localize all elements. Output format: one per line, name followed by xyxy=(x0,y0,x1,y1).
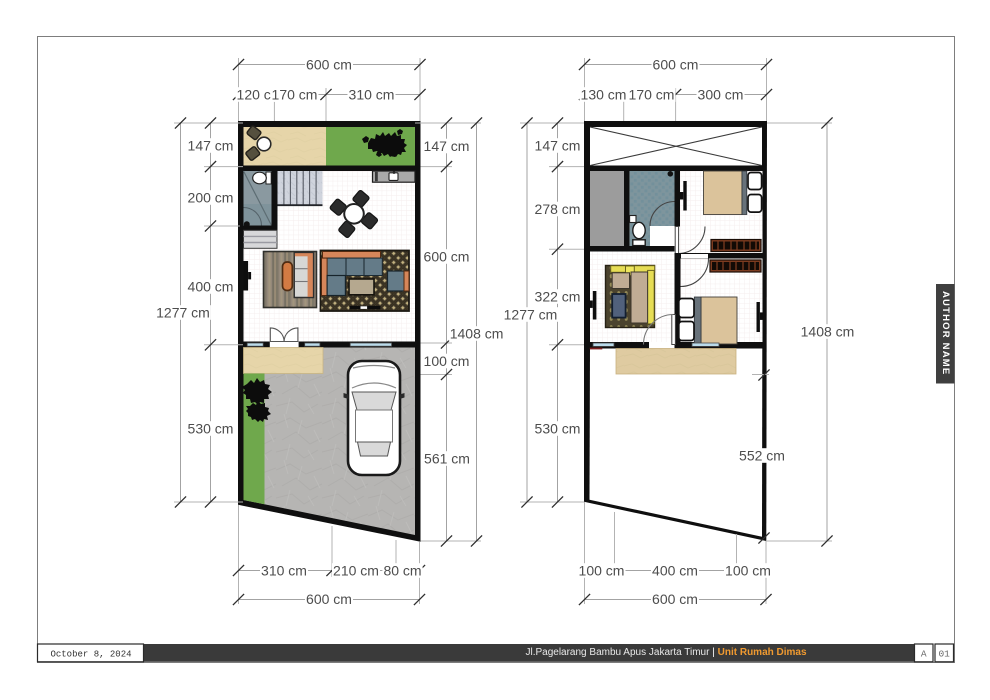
svg-text:147 cm: 147 cm xyxy=(424,138,470,154)
svg-text:1408 cm: 1408 cm xyxy=(450,326,504,342)
svg-text:530 cm: 530 cm xyxy=(188,421,234,437)
svg-text:600 cm: 600 cm xyxy=(653,57,699,73)
svg-text:1277 cm: 1277 cm xyxy=(156,305,210,321)
svg-text:AUTHOR NAME: AUTHOR NAME xyxy=(940,291,951,375)
svg-text:322 cm: 322 cm xyxy=(535,289,581,305)
svg-text:A: A xyxy=(921,649,927,660)
svg-text:600 cm: 600 cm xyxy=(424,249,470,265)
svg-text:310 cm: 310 cm xyxy=(261,563,307,579)
svg-text:552 cm: 552 cm xyxy=(739,448,785,464)
svg-text:80 cm: 80 cm xyxy=(383,563,421,579)
svg-text:100 cm: 100 cm xyxy=(579,563,625,579)
svg-text:400 cm: 400 cm xyxy=(652,563,698,579)
svg-text:1408 cm: 1408 cm xyxy=(801,324,855,340)
svg-text:100 cm: 100 cm xyxy=(725,563,771,579)
svg-text:300 cm: 300 cm xyxy=(698,87,744,103)
svg-text:170 cm: 170 cm xyxy=(272,87,318,103)
svg-text:170 cm: 170 cm xyxy=(629,87,675,103)
svg-text:600 cm: 600 cm xyxy=(306,57,352,73)
svg-text:530 cm: 530 cm xyxy=(535,421,581,437)
svg-text:October 8, 2024: October 8, 2024 xyxy=(50,650,131,660)
svg-text:210 cm: 210 cm xyxy=(333,563,379,579)
svg-text:600 cm: 600 cm xyxy=(306,591,352,607)
svg-text:Jl.Pagelarang Bambu Apus Jakar: Jl.Pagelarang Bambu Apus Jakarta Timur |… xyxy=(525,647,806,658)
svg-text:130 cm: 130 cm xyxy=(581,87,627,103)
svg-text:1277 cm: 1277 cm xyxy=(504,307,558,323)
svg-text:147 cm: 147 cm xyxy=(188,138,234,154)
svg-text:100 cm: 100 cm xyxy=(424,353,470,369)
svg-text:01: 01 xyxy=(938,649,950,660)
svg-text:310 cm: 310 cm xyxy=(349,87,395,103)
svg-text:400 cm: 400 cm xyxy=(188,279,234,295)
svg-text:600 cm: 600 cm xyxy=(652,591,698,607)
svg-text:561 cm: 561 cm xyxy=(424,451,470,467)
svg-text:147 cm: 147 cm xyxy=(535,138,581,154)
svg-text:200 cm: 200 cm xyxy=(188,190,234,206)
svg-text:278 cm: 278 cm xyxy=(535,201,581,217)
